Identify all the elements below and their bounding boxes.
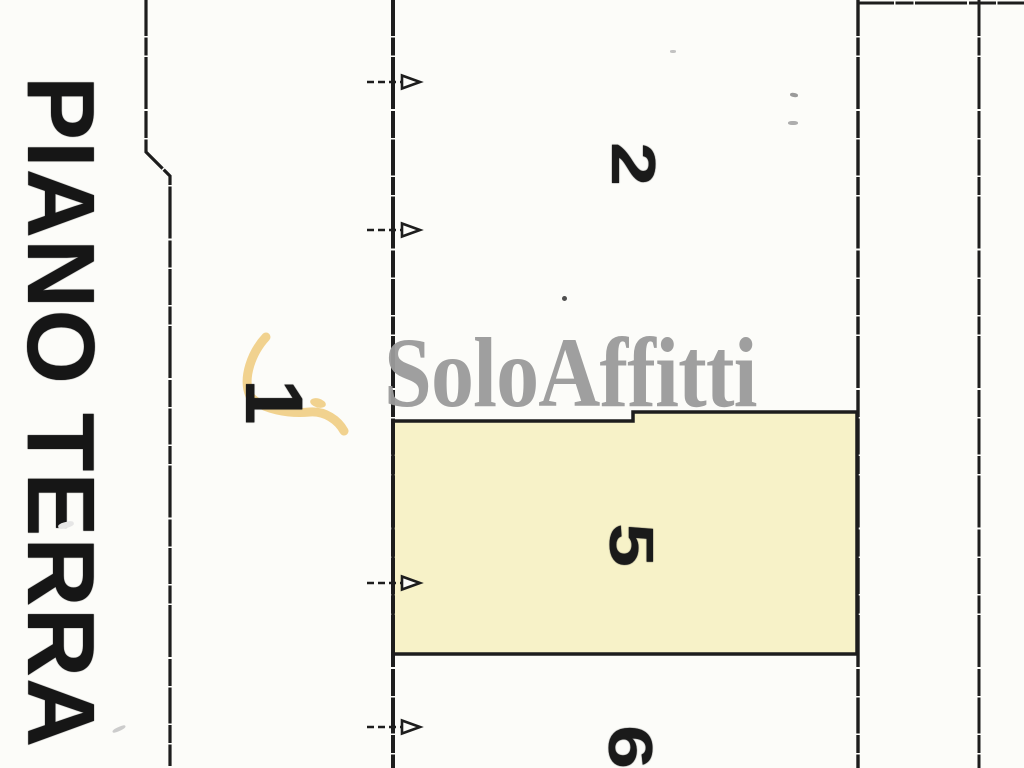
scan-speck — [562, 296, 567, 301]
room-number-2: 2 — [607, 142, 657, 186]
floor-plan-scan: SoloAffitti PIANO TERRA 1 2 5 6 — [0, 0, 1024, 768]
wall-left-boundary — [146, 0, 170, 766]
room-number-5: 5 — [605, 523, 655, 567]
room-number-6: 6 — [604, 725, 654, 768]
floor-label: PIANO TERRA — [14, 76, 106, 748]
arrow-head — [402, 76, 420, 89]
room-number-1: 1 — [241, 379, 305, 425]
arrow-head — [402, 224, 420, 237]
arrow-head — [402, 721, 420, 734]
watermark-brand: SoloAffitti — [384, 323, 757, 423]
scan-speck — [670, 50, 676, 53]
scan-speck — [788, 121, 798, 125]
